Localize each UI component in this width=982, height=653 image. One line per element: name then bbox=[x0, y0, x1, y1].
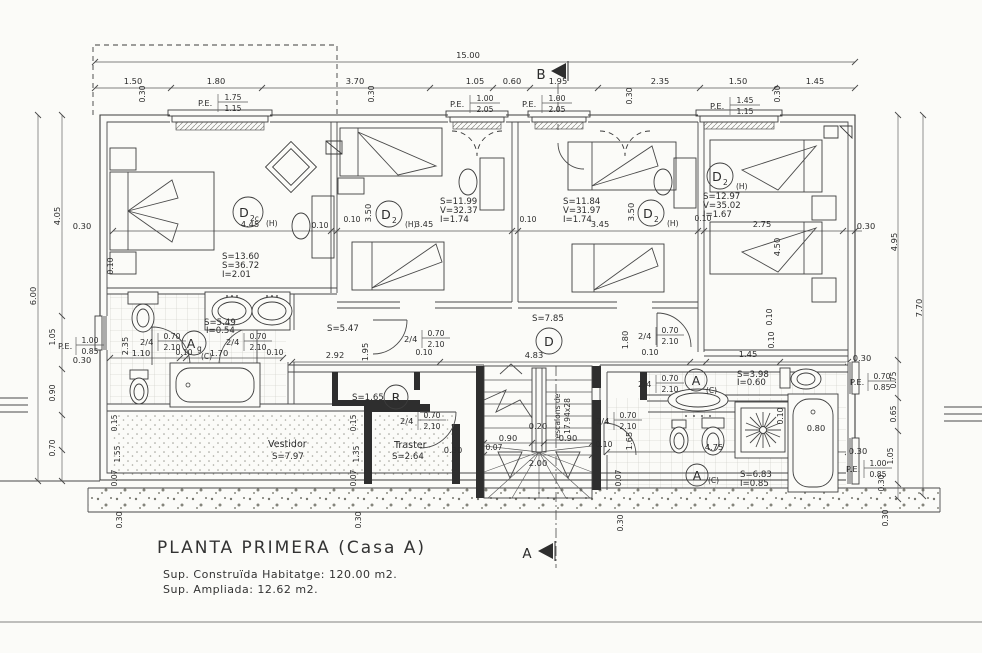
svg-text:P.E.: P.E. bbox=[850, 377, 864, 387]
room-area: I=0.54 bbox=[206, 326, 235, 336]
dim-label: 0.30 bbox=[444, 445, 462, 455]
dim-label: 0.10 bbox=[312, 221, 329, 230]
single-bed bbox=[710, 222, 822, 274]
dim-label: 0.30 bbox=[849, 446, 867, 456]
dim-label: 1.80 bbox=[620, 331, 630, 349]
plan-title: PLANTA PRIMERA (Casa A) bbox=[157, 538, 426, 558]
plan-subtitle: Sup. Construïda Habitatge: 120.00 m2. bbox=[163, 568, 397, 581]
svg-text:2: 2 bbox=[654, 215, 659, 224]
single-bed bbox=[340, 128, 442, 176]
dim-label: 0.10 bbox=[106, 257, 115, 274]
dim-label: 0.10 bbox=[520, 215, 537, 224]
dim-label: 0.30 bbox=[773, 85, 782, 102]
svg-text:A: A bbox=[693, 468, 702, 483]
dim-label: 0.60 bbox=[503, 76, 521, 86]
dim-label: 2.92 bbox=[326, 350, 344, 360]
dim-label: 0.30 bbox=[616, 514, 625, 531]
svg-text:2.10: 2.10 bbox=[428, 340, 445, 349]
svg-text:D: D bbox=[712, 169, 722, 184]
room-area: I=1.74 bbox=[563, 215, 592, 225]
dim-label: 1.50 bbox=[124, 76, 142, 86]
dim-label: 0.30 bbox=[354, 511, 363, 528]
svg-text:0.70: 0.70 bbox=[662, 326, 679, 335]
svg-text:P.E.: P.E. bbox=[58, 341, 72, 351]
svg-text:A: A bbox=[187, 336, 196, 351]
svg-text:(C): (C) bbox=[706, 386, 717, 395]
dim-label: 0.10 bbox=[267, 348, 284, 357]
dim-label: 1.45 bbox=[806, 76, 824, 86]
staircase bbox=[484, 364, 592, 498]
dim-label: 4.95 bbox=[889, 233, 899, 251]
dim-label: 0.30 bbox=[73, 221, 91, 231]
dim-label: 0.10 bbox=[596, 440, 613, 449]
dim-label: 1.05 bbox=[466, 76, 484, 86]
dim-label: 1.45 bbox=[739, 349, 757, 359]
dim-label: 2.35 bbox=[651, 76, 669, 86]
dim-label: 1.65 bbox=[624, 432, 634, 450]
room-id-hall: D bbox=[536, 328, 562, 354]
dim-label: 0.10 bbox=[765, 308, 774, 325]
svg-text:2.05: 2.05 bbox=[549, 105, 566, 114]
bath2-fixtures bbox=[780, 368, 821, 389]
section-arrow-icon bbox=[538, 543, 553, 559]
room-area: S=5.47 bbox=[327, 324, 359, 334]
svg-text:1.00: 1.00 bbox=[549, 94, 566, 103]
svg-text:2.10: 2.10 bbox=[164, 343, 181, 352]
marker-b-label: B bbox=[536, 67, 545, 83]
room-area: I=0.85 bbox=[740, 479, 769, 489]
dim-label: 1.05 bbox=[48, 328, 57, 345]
dim-label: 4.75 bbox=[705, 442, 723, 452]
svg-text:1.15: 1.15 bbox=[225, 104, 242, 113]
dim-label: 0.07 bbox=[110, 469, 119, 486]
desk-chair bbox=[654, 158, 696, 208]
dim-overall-width: 15.00 bbox=[456, 50, 480, 60]
marker-a-label: A bbox=[522, 546, 532, 562]
svg-text:0.85: 0.85 bbox=[874, 383, 891, 392]
nightstand bbox=[338, 178, 364, 194]
svg-text:0.70: 0.70 bbox=[620, 411, 637, 420]
dim-label: 1.95 bbox=[549, 76, 567, 86]
dim-label: 3.45 bbox=[415, 219, 433, 229]
door-label: 2/4 0.70 2.10 bbox=[404, 329, 450, 349]
dim-label: 0.30 bbox=[367, 85, 376, 102]
room-id-d2b: D 2 (H) bbox=[638, 200, 679, 228]
dim-label: 3.45 bbox=[591, 219, 609, 229]
svg-text:2/4: 2/4 bbox=[226, 337, 239, 347]
dim-label: 0.10 bbox=[344, 215, 361, 224]
svg-text:0.85: 0.85 bbox=[82, 347, 99, 356]
room-id-d2a: D 2 (H) bbox=[376, 201, 417, 229]
svg-text:2/4: 2/4 bbox=[638, 379, 651, 389]
svg-text:(C): (C) bbox=[708, 476, 719, 485]
svg-text:2/4: 2/4 bbox=[140, 337, 153, 347]
dim-label: 1.70 bbox=[210, 348, 228, 358]
dim-label: 0.15 bbox=[349, 414, 358, 431]
room-name: Traster bbox=[393, 440, 427, 451]
double-bed bbox=[110, 172, 214, 250]
svg-text:1.75: 1.75 bbox=[225, 93, 242, 102]
dim-label: 0.30 bbox=[115, 511, 124, 528]
svg-text:P.E.: P.E. bbox=[522, 99, 536, 109]
room-area: S=1.65 bbox=[352, 393, 384, 403]
dim-label: 4.05 bbox=[52, 207, 62, 225]
svg-text:2.10: 2.10 bbox=[662, 337, 679, 346]
dim-label: 0.10 bbox=[642, 348, 659, 357]
dim-label: 1.35 bbox=[352, 445, 361, 462]
single-bed bbox=[352, 242, 444, 290]
svg-text:P.E.: P.E. bbox=[198, 98, 212, 108]
svg-text:P.E.: P.E. bbox=[846, 464, 860, 474]
dim-label: 4.83 bbox=[525, 350, 543, 360]
dim-label: 0.30 bbox=[73, 355, 91, 365]
svg-text:D: D bbox=[544, 334, 554, 349]
svg-text:D: D bbox=[643, 206, 653, 221]
svg-text:2/4: 2/4 bbox=[400, 416, 413, 426]
dim-label: 1.05 bbox=[886, 447, 895, 464]
svg-text:0.70: 0.70 bbox=[164, 332, 181, 341]
dim-label: 0.70 bbox=[48, 439, 57, 456]
svg-text:0.70: 0.70 bbox=[424, 411, 441, 420]
dim-label: 0.90 bbox=[499, 433, 517, 443]
dim-label: 3.50 bbox=[363, 204, 373, 222]
svg-text:D: D bbox=[381, 207, 391, 222]
bidet-icon bbox=[670, 420, 688, 453]
svg-text:(H): (H) bbox=[667, 219, 679, 228]
svg-text:A: A bbox=[692, 373, 701, 388]
svg-text:1.00: 1.00 bbox=[82, 336, 99, 345]
dim-label: 6.00 bbox=[28, 287, 38, 305]
armchair bbox=[266, 142, 317, 193]
svg-text:2.10: 2.10 bbox=[424, 422, 441, 431]
dim-label: 0.80 bbox=[807, 423, 825, 433]
dim-label: 0.15 bbox=[110, 414, 119, 431]
bathtub-icon bbox=[170, 363, 260, 407]
svg-text:2: 2 bbox=[392, 216, 397, 225]
svg-text:(C): (C) bbox=[201, 352, 212, 361]
room-name: Vestidor bbox=[268, 439, 307, 450]
stair-up-arrow bbox=[500, 364, 522, 374]
dim-label: 0.07 bbox=[486, 443, 503, 452]
room-area: S=7.97 bbox=[272, 452, 304, 462]
svg-text:1.00: 1.00 bbox=[870, 459, 887, 468]
section-marker-a: A bbox=[522, 541, 555, 562]
svg-text:P.E.: P.E. bbox=[710, 101, 724, 111]
dim-label: 0.07 bbox=[349, 469, 358, 486]
dim-label: 2.75 bbox=[753, 219, 771, 229]
svg-text:0.70: 0.70 bbox=[428, 329, 445, 338]
room-area: I=0.60 bbox=[737, 378, 766, 388]
dim-label: 2.00 bbox=[529, 458, 547, 468]
dim-label: 0.20 bbox=[529, 421, 547, 431]
dim-label: 1.80 bbox=[207, 76, 225, 86]
dim-label: 0.30 bbox=[857, 221, 875, 231]
svg-text:2c: 2c bbox=[250, 214, 259, 223]
svg-text:D: D bbox=[239, 205, 249, 220]
single-bed bbox=[568, 142, 676, 190]
svg-text:R: R bbox=[392, 390, 401, 405]
room-area: I=1.67 bbox=[703, 210, 732, 220]
plan-subtitle: Sup. Ampliada: 12.62 m2. bbox=[163, 583, 318, 596]
dim-label: 7.70 bbox=[914, 299, 924, 317]
dim-label: 0.30 bbox=[881, 509, 890, 526]
dim-label: 1.95 bbox=[360, 343, 370, 361]
svg-text:1.45: 1.45 bbox=[737, 96, 754, 105]
svg-text:2.10: 2.10 bbox=[662, 385, 679, 394]
dim-label: 2.35 bbox=[120, 337, 130, 355]
stair-note: 17.94x28 bbox=[563, 398, 572, 434]
nightstand bbox=[812, 196, 836, 220]
title-block: PLANTA PRIMERA (Casa A) Sup. Construïda … bbox=[157, 538, 426, 596]
dim-label: 0.30 bbox=[138, 85, 147, 102]
dim-label: 0.07 bbox=[614, 469, 623, 486]
bidet-icon bbox=[130, 370, 148, 404]
svg-text:2: 2 bbox=[723, 178, 728, 187]
svg-text:1.15: 1.15 bbox=[737, 107, 754, 116]
svg-text:2/4: 2/4 bbox=[638, 331, 651, 341]
dim-label: 3.50 bbox=[626, 203, 636, 221]
floor-plan-sheet: B A 15.00 1.50 1.80 3.70 1.05 0.60 1.95 … bbox=[0, 0, 982, 653]
dim-label: 0.10 bbox=[416, 348, 433, 357]
dim-label: 0.10 bbox=[767, 331, 776, 348]
dim-label: 1.10 bbox=[132, 348, 150, 358]
svg-text:(H): (H) bbox=[736, 182, 748, 191]
dim-label: 3.70 bbox=[346, 76, 364, 86]
svg-text:2.05: 2.05 bbox=[477, 105, 494, 114]
room-area: I=1.74 bbox=[440, 215, 469, 225]
room-area: S=7.85 bbox=[532, 314, 564, 324]
toilet-icon bbox=[780, 368, 821, 389]
room-id-d2d: D 2 (H) bbox=[707, 163, 748, 191]
svg-text:0.70: 0.70 bbox=[250, 332, 267, 341]
svg-text:0.85: 0.85 bbox=[870, 470, 887, 479]
dim-label: 4.50 bbox=[772, 238, 782, 256]
bathtub-icon bbox=[788, 394, 838, 492]
dim-label: 0.30 bbox=[853, 353, 871, 363]
nightstand bbox=[812, 278, 836, 302]
single-bed bbox=[572, 244, 664, 292]
svg-text:P.E.: P.E. bbox=[450, 99, 464, 109]
svg-text:2/4: 2/4 bbox=[596, 416, 609, 426]
dim-label: 1.50 bbox=[729, 76, 747, 86]
stair-note: escalons de bbox=[553, 393, 562, 438]
svg-text:(H): (H) bbox=[266, 219, 278, 228]
room-area: I=2.01 bbox=[222, 270, 251, 280]
svg-text:(H): (H) bbox=[405, 220, 417, 229]
dim-label: 0.30 bbox=[625, 87, 634, 104]
dim-label: 1.55 bbox=[113, 445, 122, 462]
room-area: S=2.64 bbox=[392, 452, 424, 462]
svg-text:2.10: 2.10 bbox=[250, 343, 267, 352]
nightstand bbox=[110, 148, 136, 170]
svg-text:2.10: 2.10 bbox=[620, 422, 637, 431]
svg-text:1.00: 1.00 bbox=[477, 94, 494, 103]
svg-text:0.70: 0.70 bbox=[662, 374, 679, 383]
dim-label: 0.65 bbox=[889, 405, 898, 422]
svg-text:2/4: 2/4 bbox=[404, 334, 417, 344]
svg-text:0.70: 0.70 bbox=[874, 372, 891, 381]
door-label: 2/4 0.70 2.10 bbox=[638, 326, 684, 346]
dim-label: 0.90 bbox=[48, 384, 57, 401]
floor-plan-drawing: B A 15.00 1.50 1.80 3.70 1.05 0.60 1.95 … bbox=[0, 0, 982, 653]
dim-label: 0.10 bbox=[776, 407, 785, 424]
